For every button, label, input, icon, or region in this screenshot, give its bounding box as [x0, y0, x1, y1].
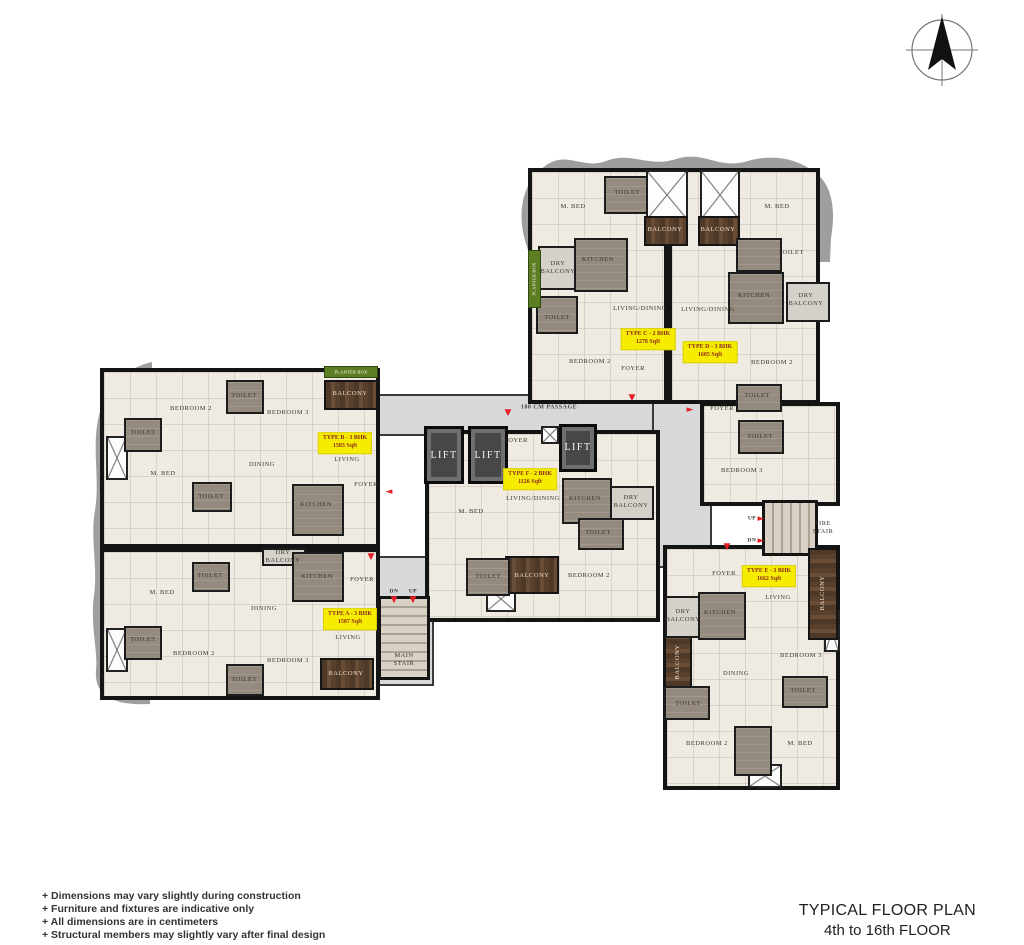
unit-type-label: TYPE D - 3 BHK1605 Sqft [683, 341, 738, 363]
room-label: LIVING/DINING [506, 495, 560, 503]
room-label: TOILET [747, 433, 773, 441]
room-label: TOILET [130, 429, 156, 437]
room-label: BALCONY [329, 670, 364, 678]
unit-type-name: TYPE F - 2 BHK [508, 471, 552, 479]
note-line: + Structural members may slightly vary a… [42, 929, 325, 942]
entry-arrow-icon: ► [758, 536, 765, 546]
room-label: TOILET [198, 493, 224, 501]
entry-arrow-icon: ► [687, 405, 694, 415]
room-label: M. BED [560, 203, 585, 211]
entry-arrow-icon: ▼ [629, 393, 636, 403]
room-label: LIFT [474, 450, 501, 462]
room-label: TOILET [130, 636, 156, 644]
room-label: LIVING/DINING [613, 305, 667, 313]
room-label: DRY BALCONY [666, 608, 701, 624]
room-label: DRY BALCONY [789, 292, 824, 308]
unit-type-name: TYPE C - 2 BHK [626, 331, 671, 339]
north-compass-icon [898, 6, 986, 94]
unit-type-label: TYPE C - 2 BHK1278 Sqft [621, 328, 676, 350]
entry-arrow-icon: ▼ [391, 595, 398, 605]
room-label: BEDROOM 2 [569, 358, 611, 366]
room-label: FOYER [354, 481, 378, 489]
room-label: DRY BALCONY [266, 549, 301, 565]
unit-type-area: 1583 Sqft [323, 443, 367, 451]
room-label: TOILET [790, 687, 816, 695]
room-label: BEDROOM 3 [780, 652, 822, 660]
unit-type-label: TYPE F - 2 BHK1126 Sqft [503, 468, 557, 490]
room-label: BEDROOM 2 [568, 572, 610, 580]
toilet [736, 238, 782, 272]
room-label: DINING [251, 605, 277, 613]
note-line: + Dimensions may vary slightly during co… [42, 890, 325, 903]
room-label: TOILET [197, 572, 223, 580]
room-label: BEDROOM 3 [267, 409, 309, 417]
title-line-1: TYPICAL FLOOR PLAN [799, 902, 976, 920]
room-label: BEDROOM 2 [686, 740, 728, 748]
room-label: TOILET [475, 573, 501, 581]
room-label: TOILET [585, 529, 611, 537]
room-label: 180 CM PASSAGE [521, 404, 577, 411]
room-label: BEDROOM 2 [751, 359, 793, 367]
toilet [734, 726, 772, 776]
room-label: FOYER [350, 576, 374, 584]
room-label: KITCHEN [738, 292, 770, 300]
room-label: TOILET [675, 700, 701, 708]
room-label: TOILET [231, 676, 257, 684]
unit-type-name: TYPE B - 3 BHK [323, 435, 367, 443]
unit-type-label: TYPE A - 3 BHK1587 Sqft [323, 608, 377, 630]
room-label: LIFT [564, 442, 591, 454]
room-label: KITCHEN [569, 495, 601, 503]
room-label: FIRE STAIR [813, 520, 834, 536]
shaft [541, 426, 559, 444]
room-label: UP [748, 516, 756, 523]
unit-type-area: 1662 Sqft [747, 576, 791, 584]
room-label: TOILET [231, 392, 257, 400]
floor-plan: BEDROOM 2TOILETBEDROOM 3BALCONYTOILETM. … [0, 0, 1024, 945]
unit-type-area: 1126 Sqft [508, 479, 552, 487]
entry-arrow-icon: ▼ [724, 542, 731, 552]
kitchen [292, 484, 344, 536]
room-label: LIFT [430, 450, 457, 462]
room-label: KITCHEN [582, 256, 614, 264]
room-label: DN [748, 538, 757, 545]
entry-arrow-icon: ▼ [505, 408, 512, 418]
unit-type-name: TYPE D - 3 BHK [688, 344, 733, 352]
room-label: FOYER [621, 365, 645, 373]
unit-type-area: 1278 Sqft [626, 339, 671, 347]
entry-arrow-icon: ◄ [386, 487, 393, 497]
kitchen [574, 238, 628, 292]
room-label: LIVING [334, 456, 359, 464]
room-label: TOILET [614, 189, 640, 197]
room-label: TOILET [778, 249, 804, 257]
room-label: TOILET [544, 314, 570, 322]
room-label: DRY BALCONY [541, 260, 576, 276]
unit-type-area: 1587 Sqft [328, 619, 372, 627]
room-label: BALCONY [701, 226, 736, 234]
room-label: DINING [249, 461, 275, 469]
entry-arrow-icon: ► [758, 514, 765, 524]
note-line: + All dimensions are in centimeters [42, 916, 325, 929]
room-label: BALCONY [674, 645, 682, 680]
room-label: KITCHEN [300, 501, 332, 509]
unit-type-name: TYPE A - 3 BHK [328, 611, 372, 619]
room-label: M. BED [787, 740, 812, 748]
room-label: KITCHEN [704, 609, 736, 617]
room-label: M. BED [764, 203, 789, 211]
room-label: DRY BALCONY [614, 494, 649, 510]
room-label: BEDROOM 2 [170, 405, 212, 413]
room-label: M. BED [149, 589, 174, 597]
room-label: BEDROOM 3 [267, 657, 309, 665]
room-label: FOYER [504, 437, 528, 445]
room-label: FOYER [710, 405, 734, 413]
room-label: BALCONY [819, 576, 827, 611]
unit-type-label: TYPE E - 3 BHK1662 Sqft [742, 565, 796, 587]
room-label: PLANTER BOX [334, 369, 367, 374]
room-label: KITCHEN [301, 573, 333, 581]
entry-arrow-icon: ▼ [410, 595, 417, 605]
room-label: BALCONY [333, 390, 368, 398]
unit-d-lower [700, 402, 840, 506]
drawing-title: TYPICAL FLOOR PLAN 4th to 16th FLOOR [799, 902, 976, 939]
room-label: LIVING/DINING [681, 306, 735, 314]
room-label: PLANTER BOX [531, 262, 536, 295]
room-label: FOYER [712, 570, 736, 578]
entry-arrow-icon: ▼ [368, 552, 375, 562]
disclaimer-notes: + Dimensions may vary slightly during co… [42, 890, 325, 942]
room-label: BALCONY [515, 572, 550, 580]
unit-type-name: TYPE E - 3 BHK [747, 568, 791, 576]
room-label: LIVING [335, 634, 360, 642]
room-label: M. BED [458, 508, 483, 516]
room-label: LIVING [765, 594, 790, 602]
room-label: TOILET [744, 392, 770, 400]
title-line-2: 4th to 16th FLOOR [799, 922, 976, 939]
room-label: DINING [723, 670, 749, 678]
unit-type-area: 1605 Sqft [688, 352, 733, 360]
room-label: M. BED [150, 470, 175, 478]
room-label: BALCONY [648, 226, 683, 234]
room-label: BEDROOM 2 [173, 650, 215, 658]
unit-type-label: TYPE B - 3 BHK1583 Sqft [318, 432, 372, 454]
note-line: + Furniture and fixtures are indicative … [42, 903, 325, 916]
shaft [700, 170, 740, 220]
shaft [646, 170, 688, 220]
room-label: MAIN STAIR [394, 652, 415, 668]
room-label: BEDROOM 3 [721, 467, 763, 475]
